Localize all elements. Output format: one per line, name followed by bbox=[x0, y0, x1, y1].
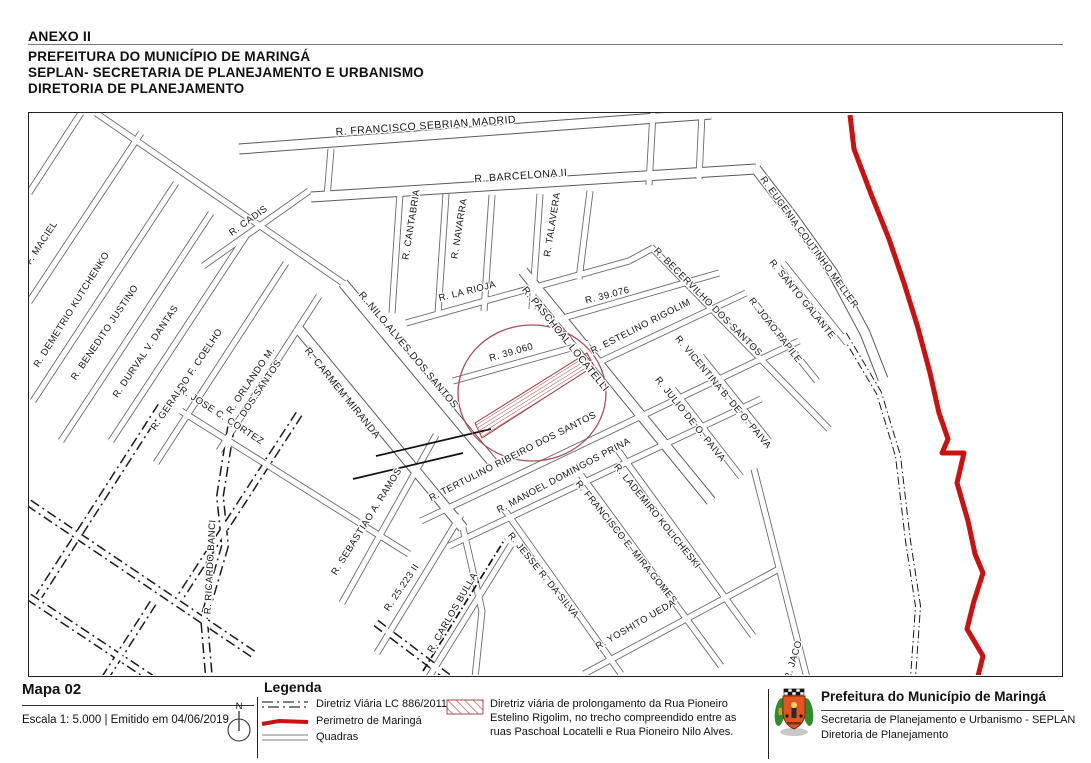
road-fill bbox=[181, 414, 299, 596]
road-fill bbox=[421, 341, 799, 521]
footer-divider-right bbox=[768, 689, 769, 759]
maringa-coat-of-arms-logo bbox=[774, 686, 814, 738]
road-fill bbox=[33, 183, 176, 401]
org-name-rule bbox=[821, 710, 1064, 711]
org-dept1: Secretaria de Planejamento e Urbanismo -… bbox=[821, 714, 1075, 726]
street-label: R. JESSE R. DA SILVA bbox=[505, 530, 581, 620]
street-label: R. NILO ALVES DOS SANTOS bbox=[356, 290, 460, 411]
header-org-line: PREFEITURA DO MUNICÍPIO DE MARINGÁ bbox=[28, 49, 310, 64]
north-label: N bbox=[236, 701, 243, 712]
legend-item-perimetro: Perimetro de Maringá bbox=[316, 715, 422, 727]
legend-item-diretriz: Diretriz Viária LC 886/2011 bbox=[316, 698, 447, 710]
legend-title: Legenda bbox=[264, 679, 322, 695]
scale-text: Escala 1: 5.000 | Emitido em 04/06/2019 bbox=[22, 714, 229, 726]
header-dept-line: DIRETORIA DE PLANEJAMENTO bbox=[28, 81, 244, 96]
street-label: R. NAVARRA bbox=[449, 197, 469, 259]
road-fill bbox=[203, 191, 309, 266]
map-frame: R. FRANCISCO SEBRIAN MADRIDR. BARCELONA … bbox=[28, 112, 1063, 677]
org-name: Prefeitura do Município de Maringá bbox=[821, 689, 1046, 704]
street-label: R. TALAVERA bbox=[542, 191, 563, 257]
dash-dot-line-symbol bbox=[261, 699, 309, 711]
header-rule bbox=[28, 44, 1063, 45]
road-fill bbox=[584, 569, 779, 674]
red-hatch-symbol bbox=[446, 699, 485, 716]
annex-title: ANEXO II bbox=[28, 28, 91, 44]
north-arrow-icon: N bbox=[220, 698, 260, 748]
street-label: R. FRANCISCO E. MIRA GOMES bbox=[573, 479, 679, 607]
header-seplan-line: SEPLAN- SECRETARIA DE PLANEJAMENTO E URB… bbox=[28, 65, 424, 80]
road-fill bbox=[579, 191, 590, 279]
diretriz-road-casing bbox=[844, 334, 918, 675]
road-fill bbox=[29, 113, 81, 193]
org-dept2: Diretoria de Planejamento bbox=[821, 729, 948, 741]
road-fill bbox=[844, 334, 918, 675]
perimeter-line-symbol bbox=[261, 716, 309, 728]
footer-divider-left bbox=[257, 697, 258, 758]
road-fill bbox=[699, 113, 702, 179]
map-number: Mapa 02 bbox=[22, 681, 81, 698]
street-label: R. CANTABRIA bbox=[401, 188, 423, 260]
document-page: { "header": { "annex": "ANEXO II", "line… bbox=[0, 0, 1091, 763]
legend-item-quadras: Quadras bbox=[316, 731, 358, 743]
street-label: R. CARMEM MIRANDA bbox=[302, 346, 382, 441]
street-label: R. DEMETRIO KUTCHENKO bbox=[32, 250, 112, 369]
double-line-symbol bbox=[261, 732, 309, 744]
road-fill bbox=[39, 406, 161, 596]
hatch-note-text: Diretriz viária de prolongamento da Rua … bbox=[490, 697, 758, 739]
street-map: R. FRANCISCO SEBRIAN MADRIDR. BARCELONA … bbox=[29, 113, 1061, 675]
road-fill bbox=[629, 248, 653, 261]
